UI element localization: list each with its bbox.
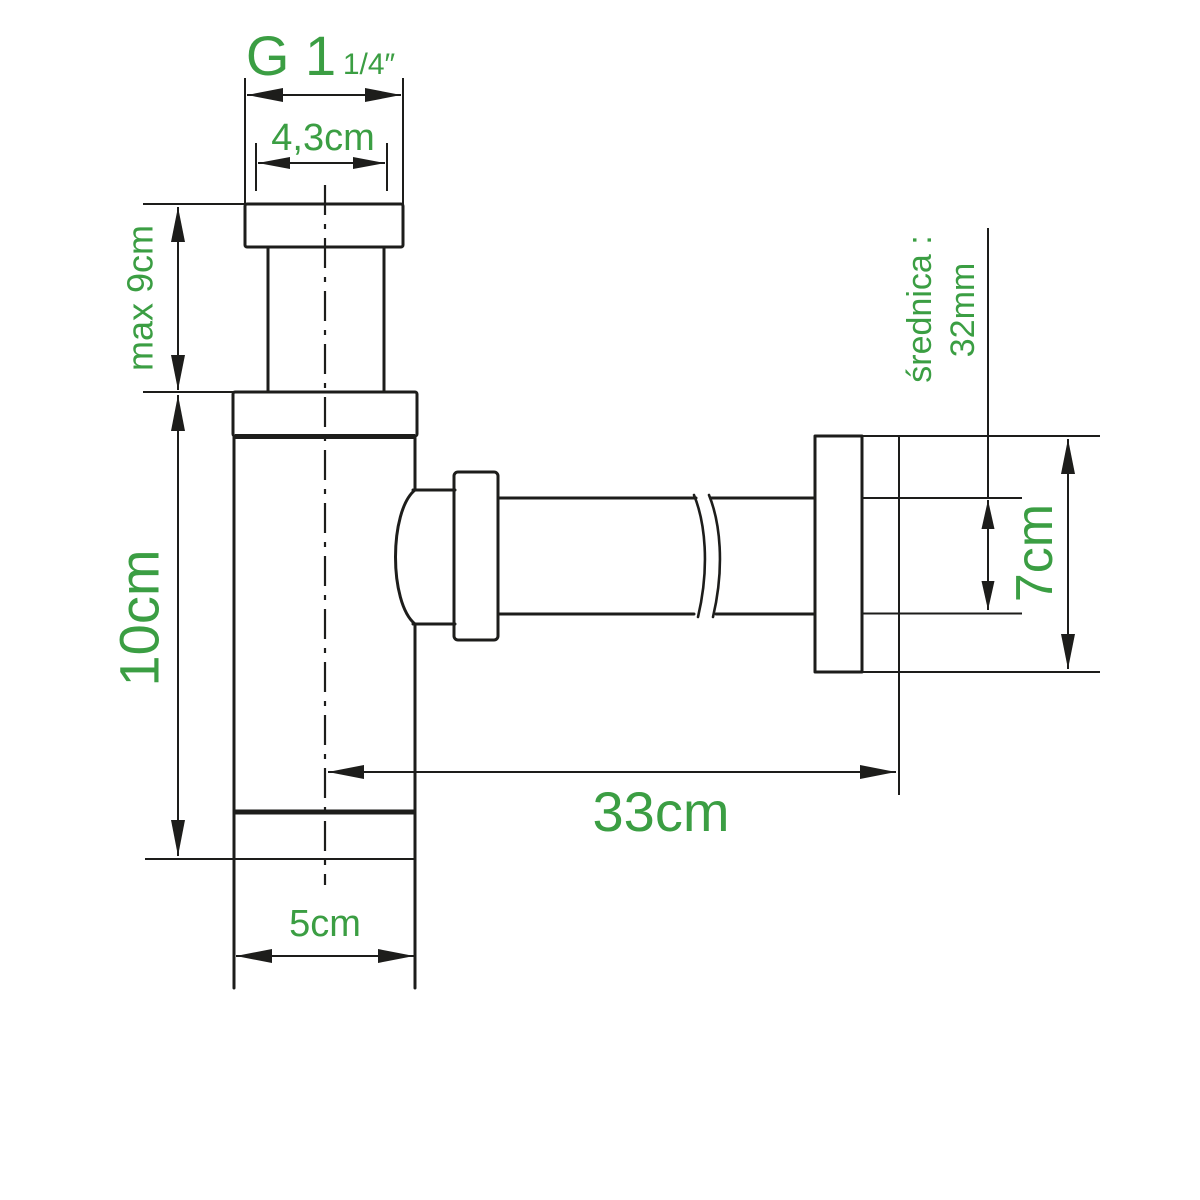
arrowhead-bottom — [982, 581, 995, 610]
pipe-break-left-curve — [694, 495, 705, 617]
outlet-dome — [396, 490, 416, 624]
wall-flange-plate — [815, 436, 862, 672]
siphon-technical-drawing: G 1 1/4″ 4,3cm max 9cm 10cm 5cm — [0, 0, 1200, 1200]
body-assembly — [145, 392, 417, 988]
arrowhead-top — [171, 395, 185, 431]
arrowhead-left — [328, 765, 364, 779]
dimension-pipe-diameter: średnica : 32mm — [901, 228, 995, 610]
arrowhead-right — [378, 949, 414, 963]
wall-assembly — [815, 436, 1022, 795]
arrowhead-top — [1061, 439, 1075, 474]
max-height-label: max 9cm — [120, 225, 161, 371]
outlet-assembly — [396, 472, 499, 640]
technical-drawing-canvas: G 1 1/4″ 4,3cm max 9cm 10cm 5cm — [0, 0, 1200, 1200]
dimension-wall-plate-height: 7cm — [862, 436, 1100, 672]
dimension-thread-size: G 1 1/4″ — [245, 24, 403, 206]
arrowhead-bottom — [171, 355, 185, 390]
pipe-diameter-caption: średnica : — [901, 235, 939, 382]
dimension-reach: 33cm — [328, 765, 896, 843]
arrowhead-left — [247, 88, 283, 102]
thread-size-label: G 1 — [246, 24, 336, 87]
arrowhead-right — [365, 88, 401, 102]
arrowhead-top — [982, 500, 995, 529]
wall-plate-height-label: 7cm — [1006, 504, 1064, 602]
arrowhead-bottom — [171, 820, 185, 856]
arrowhead-bottom — [1061, 634, 1075, 669]
thread-size-sub-label: 1/4″ — [343, 48, 396, 81]
arrowhead-top — [171, 207, 185, 242]
outlet-union-nut — [454, 472, 498, 640]
pipe-diameter-value: 32mm — [944, 263, 982, 357]
inlet-width-label: 4,3cm — [271, 117, 374, 159]
pipe-break-right-curve — [709, 495, 720, 617]
body-width-label: 5cm — [289, 903, 361, 945]
body-height-label: 10cm — [108, 550, 171, 687]
dimension-inlet-width: 4,3cm — [256, 117, 387, 191]
arrowhead-left — [236, 949, 272, 963]
horizontal-pipe — [498, 495, 815, 617]
arrowhead-right — [860, 765, 896, 779]
dimension-max-height: max 9cm — [120, 204, 246, 390]
dimension-body-height: 10cm — [108, 392, 236, 856]
reach-label: 33cm — [593, 780, 730, 843]
